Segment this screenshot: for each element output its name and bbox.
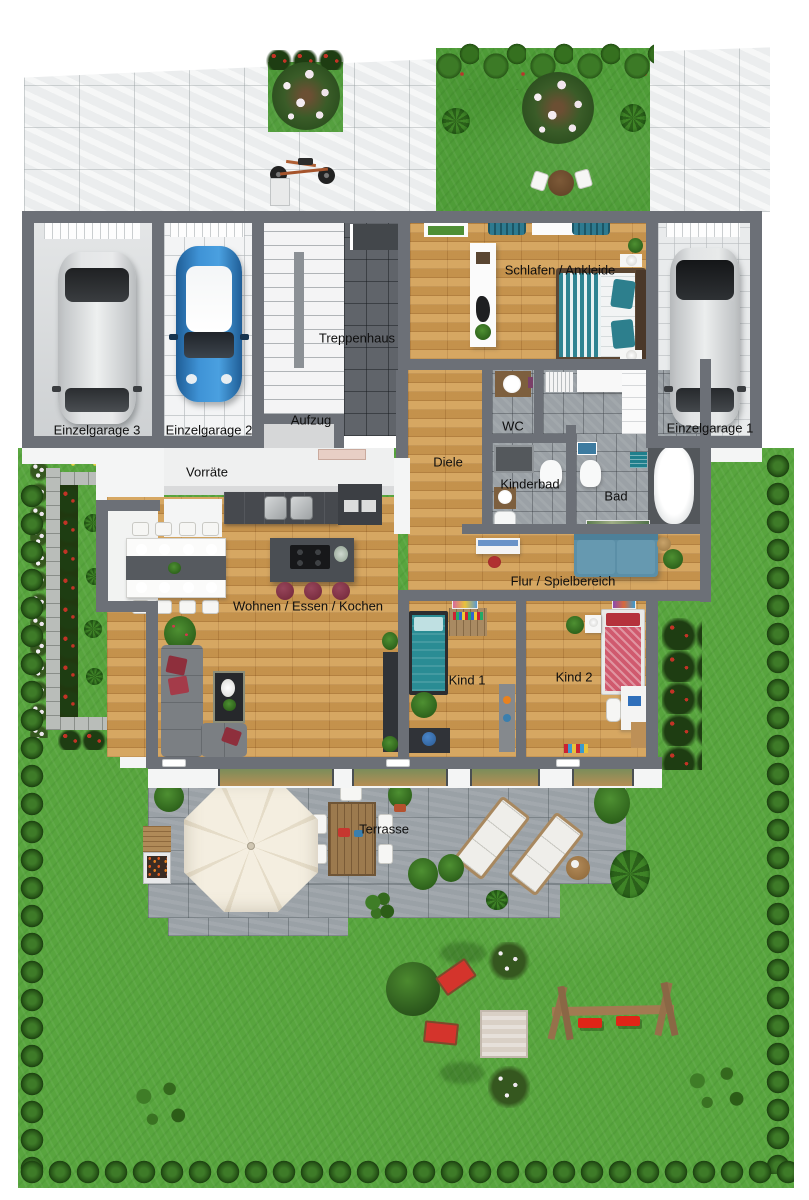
decor-vase (476, 296, 490, 322)
window-planter (428, 226, 464, 235)
kid2-bed (601, 609, 645, 695)
garage-door (666, 223, 740, 237)
wall (566, 425, 576, 532)
terrace-window (572, 769, 634, 786)
car-silver (58, 252, 136, 424)
wall (516, 601, 526, 768)
plant (475, 324, 491, 340)
potted-plant (438, 854, 464, 882)
wall (700, 359, 711, 602)
coffee-table (213, 671, 245, 723)
wall (22, 436, 264, 448)
hedge-border-bottom (18, 1158, 794, 1187)
white-flower-bush (488, 942, 530, 980)
bar-stool (276, 582, 294, 600)
room-label-einzelgarage2: Einzelgarage 2 (166, 424, 253, 437)
hedge-border-left (18, 482, 47, 1172)
stair-spine (294, 252, 304, 368)
room-label-diele: Diele (433, 456, 463, 469)
radiator (545, 372, 573, 392)
wall (96, 500, 108, 612)
palm-plant-icon (442, 108, 470, 134)
tall-cabinet (622, 370, 648, 434)
sandbox (480, 1010, 528, 1058)
bicycle-icon (268, 150, 342, 208)
wall (646, 601, 658, 768)
artwork (318, 449, 366, 460)
kid2-cabinet (631, 722, 647, 748)
wall (334, 414, 344, 448)
lamp (626, 255, 637, 266)
wall (398, 601, 409, 768)
plant (566, 616, 584, 634)
bathtub (654, 446, 694, 524)
wall (646, 211, 658, 448)
garage-door (170, 223, 244, 237)
sink (264, 496, 287, 520)
room-label-einzelgarage3: Einzelgarage 3 (54, 424, 141, 437)
bath-picture (577, 442, 597, 455)
hedge-border-right (764, 452, 793, 1174)
diele-floor (408, 370, 482, 536)
room-label-vorraete: Vorräte (186, 466, 228, 479)
kid1-shelf (449, 608, 487, 636)
room-label-treppenhaus: Treppenhaus (319, 332, 395, 345)
play-sofa-blue (574, 530, 658, 577)
kitchen-tall-units (338, 484, 382, 525)
garden-bush (668, 1052, 766, 1124)
room-label-kind2: Kind 2 (556, 671, 593, 684)
garden-table (548, 170, 574, 196)
room-label-kind1: Kind 1 (449, 674, 486, 687)
wall (152, 211, 164, 448)
bar-stool (304, 582, 322, 600)
hall-cabinet (394, 458, 410, 534)
terrace-door (218, 769, 334, 786)
plant (628, 238, 643, 253)
toys (564, 744, 588, 753)
round-bush (386, 962, 440, 1016)
wall (22, 211, 34, 448)
room-label-einzelgarage1: Einzelgarage 1 (667, 422, 754, 435)
plant (411, 692, 437, 718)
toilet (580, 460, 601, 487)
plant (382, 632, 398, 650)
floor-plan-canvas: Einzelgarage 3 Einzelgarage 2 Einzelgara… (0, 0, 809, 1200)
driveway-pavers (24, 44, 770, 212)
staircase (264, 223, 344, 414)
terrace-window (470, 769, 540, 786)
wall (252, 211, 264, 448)
decor (476, 252, 490, 264)
palm-plant-icon (610, 850, 650, 898)
wall (398, 590, 711, 601)
shadow (440, 1062, 484, 1084)
sink (498, 490, 512, 504)
sink (290, 496, 313, 520)
elevator-cab (264, 424, 334, 448)
kid1-poster (452, 600, 478, 609)
terrace-pavers (168, 918, 348, 936)
blossom-tree-icon (522, 72, 594, 144)
awning-bracket (162, 759, 186, 767)
room-label-wohnen: Wohnen / Essen / Kochen (233, 600, 383, 613)
kitchen-island (270, 538, 354, 582)
entry-door (350, 224, 398, 250)
swing-set (548, 978, 678, 1066)
room-label-schlafen: Schlafen / Ankleide (505, 264, 616, 277)
bath-cabinet (577, 368, 623, 392)
wall (146, 601, 158, 768)
kid1-bed (409, 611, 448, 695)
wall (396, 370, 408, 458)
plant (663, 549, 683, 569)
toy-bowl (488, 556, 501, 568)
terrace-bush (362, 888, 398, 924)
cup (571, 860, 579, 868)
wall (534, 365, 543, 443)
awning-bracket (556, 759, 580, 767)
plant (382, 736, 398, 752)
room-label-flur: Flur / Spielbereich (511, 575, 616, 588)
area-label-terrasse: Terrasse (359, 823, 409, 836)
room-label-wc: WC (502, 420, 524, 433)
red-flower-strip (662, 618, 702, 770)
kid1-toy-cabinet (499, 684, 515, 752)
potted-plant (408, 858, 438, 890)
kid1-chair (422, 732, 436, 746)
wc-sink (503, 375, 521, 393)
tall-plant (594, 782, 630, 824)
blossom-tree-icon (272, 62, 340, 130)
kid2-poster (612, 600, 636, 609)
palm-plant-icon (486, 890, 508, 910)
awning-bracket (386, 759, 410, 767)
play-sideboard (476, 538, 520, 554)
palm-plant-icon (620, 104, 646, 132)
bar-stool (332, 582, 350, 600)
terracotta-pot (394, 804, 406, 812)
lamp (589, 618, 598, 627)
wall (462, 524, 711, 534)
room-label-kinderbad: Kinderbad (500, 478, 559, 491)
garden-bush (118, 1066, 204, 1142)
towel (528, 377, 533, 388)
terrace-door (352, 769, 448, 786)
white-flower-bush (488, 1066, 530, 1108)
bbq-grill (143, 826, 171, 884)
room-label-bad: Bad (604, 490, 627, 503)
wall (398, 359, 658, 370)
deck-chair-red (423, 1020, 459, 1045)
car-blue-mini (176, 246, 242, 402)
kid2-chair (606, 698, 621, 722)
side-table (566, 856, 590, 880)
garage-door (44, 223, 140, 239)
treppenhaus-floor (344, 223, 398, 436)
wall (482, 365, 492, 532)
room-label-aufzug: Aufzug (291, 414, 331, 427)
towels-teal (630, 452, 647, 468)
wall (398, 211, 410, 370)
double-bed (556, 268, 646, 362)
parasol-pole (247, 842, 255, 850)
shower (494, 445, 534, 473)
wall (750, 211, 762, 448)
wall (482, 434, 577, 443)
